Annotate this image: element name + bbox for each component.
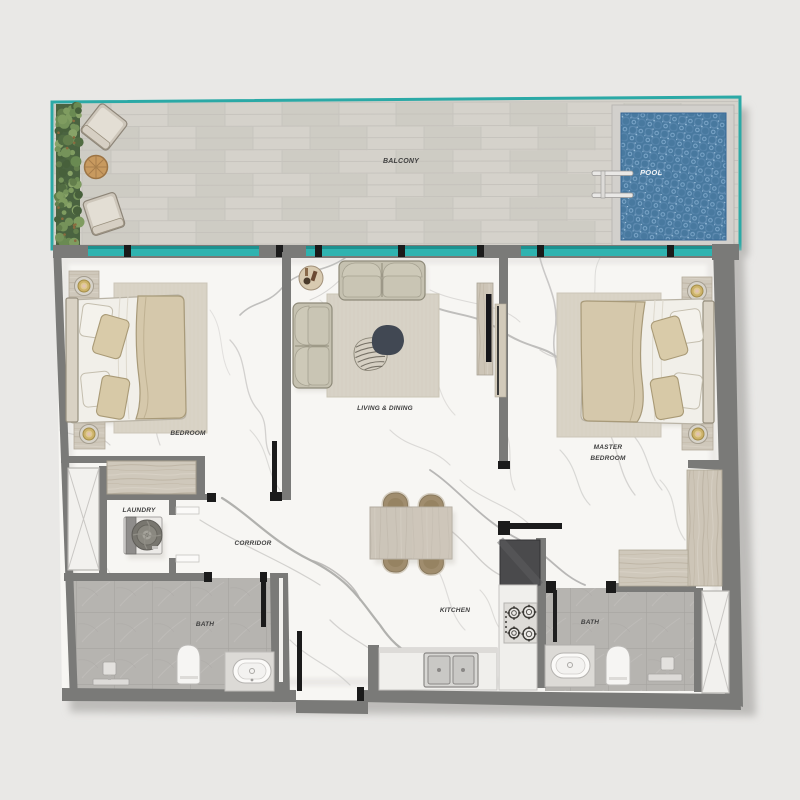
svg-text:BALCONY: BALCONY <box>383 158 420 165</box>
svg-text:BATH: BATH <box>581 619 599 626</box>
svg-text:CORRIDOR: CORRIDOR <box>235 540 272 547</box>
svg-text:BEDROOM: BEDROOM <box>590 455 626 462</box>
svg-text:LAUNDRY: LAUNDRY <box>122 507 156 514</box>
svg-text:BATH: BATH <box>196 621 214 628</box>
svg-text:MASTER: MASTER <box>594 444 623 451</box>
svg-text:POOL: POOL <box>640 168 663 177</box>
svg-text:BEDROOM: BEDROOM <box>170 430 206 437</box>
svg-text:LIVING & DINING: LIVING & DINING <box>357 405 413 412</box>
svg-text:KITCHEN: KITCHEN <box>440 607 470 614</box>
